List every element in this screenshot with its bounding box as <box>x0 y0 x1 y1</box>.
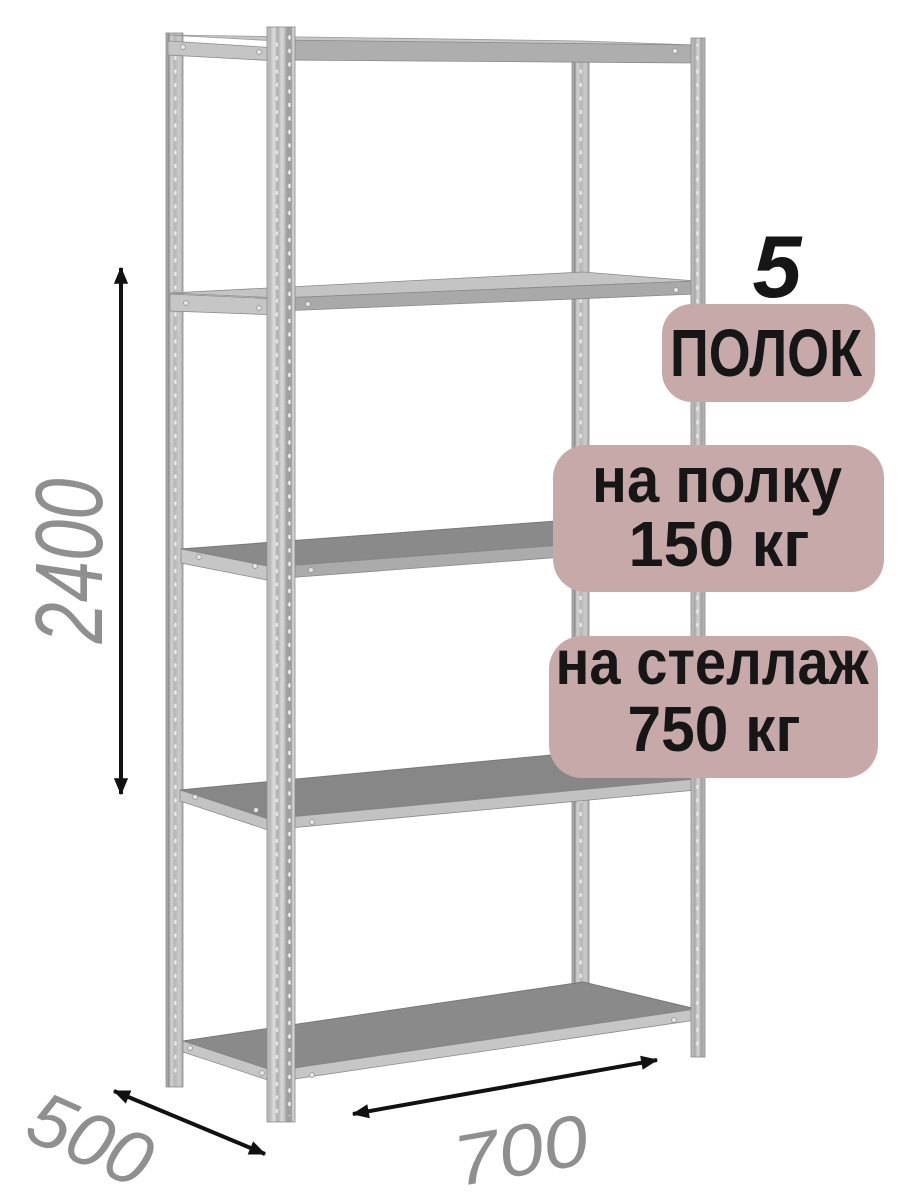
svg-text:ПОЛОК: ПОЛОК <box>670 316 862 391</box>
svg-text:5: 5 <box>753 217 803 316</box>
svg-text:на полку: на полку <box>592 444 842 516</box>
svg-text:2400: 2400 <box>16 479 123 645</box>
svg-text:150 кг: 150 кг <box>629 508 810 580</box>
svg-text:на стеллаж: на стеллаж <box>556 628 870 698</box>
svg-text:750 кг: 750 кг <box>628 693 801 765</box>
